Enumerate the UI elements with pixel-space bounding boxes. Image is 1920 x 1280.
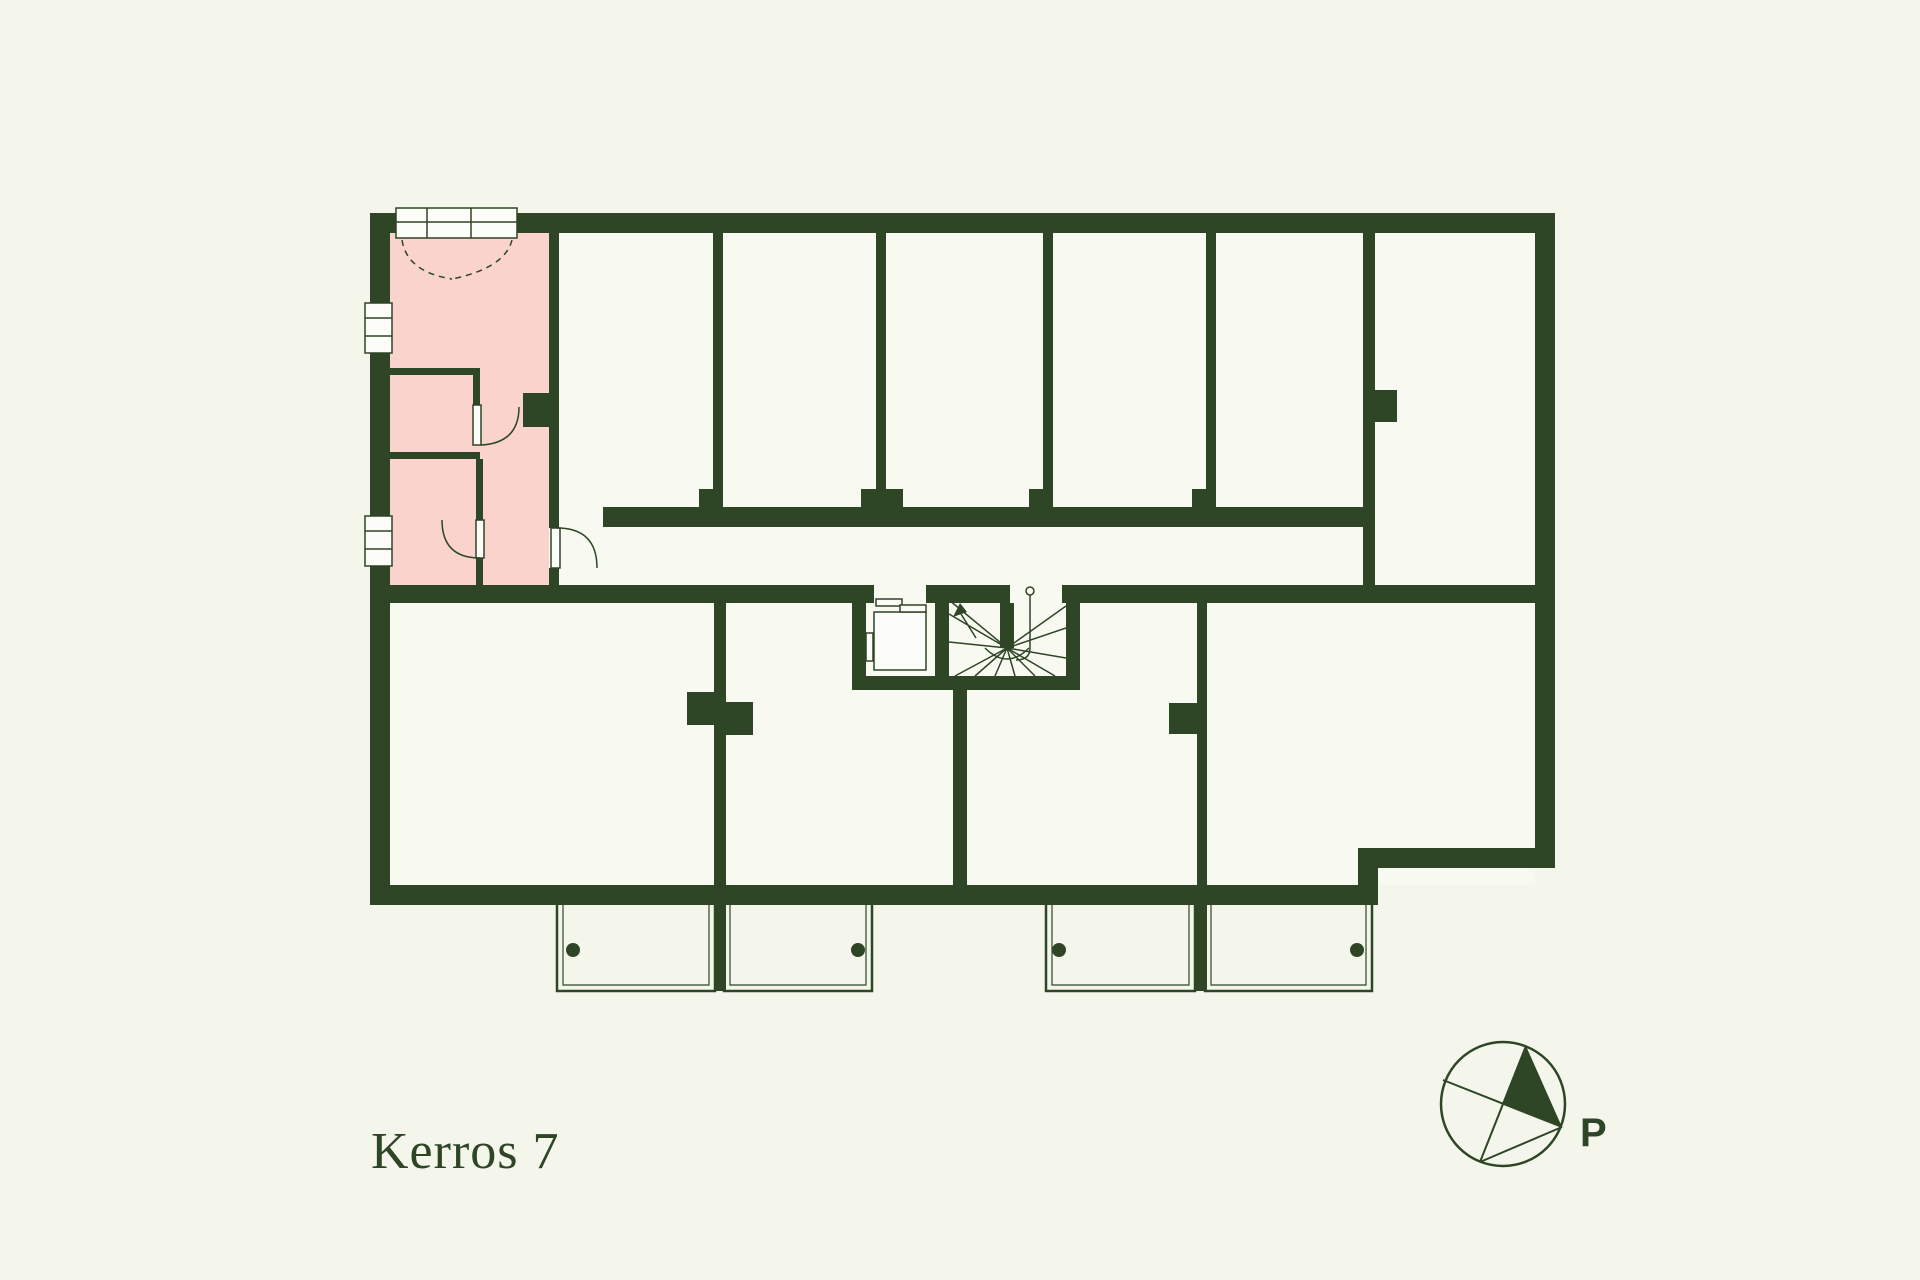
wall-segment <box>370 585 874 603</box>
wall-segment <box>852 585 866 690</box>
balcony-drain-dot <box>851 943 865 957</box>
wall-segment <box>1206 233 1216 507</box>
wall-segment <box>603 507 1363 527</box>
wall-segment <box>1378 848 1555 868</box>
floor-plan-canvas: P Kerros 7 <box>0 0 1920 1280</box>
wall-segment <box>953 690 967 885</box>
wall-segment <box>390 452 480 459</box>
wall-segment <box>476 459 483 520</box>
balcony <box>724 905 872 991</box>
wall-segment <box>549 233 559 528</box>
wall-segment <box>476 558 483 585</box>
wall-segment <box>390 368 480 375</box>
north-label: P <box>1580 1111 1607 1155</box>
wall-segment <box>714 603 726 885</box>
compass: P <box>1441 1042 1607 1166</box>
page: P Kerros 7 <box>0 0 1920 1280</box>
elevator-counterweight <box>866 633 873 661</box>
balcony-divider-wall <box>714 905 726 991</box>
wall-segment <box>1066 585 1080 690</box>
wall-segment <box>1043 233 1053 507</box>
wall-segment <box>1358 848 1378 905</box>
wall-segment <box>1535 213 1555 868</box>
balconies <box>557 905 1372 991</box>
elevator-cab <box>874 612 926 670</box>
wall-stub <box>1375 390 1397 422</box>
duct-block <box>523 393 549 427</box>
balcony-drain-dot <box>1350 943 1364 957</box>
balcony <box>1046 905 1195 991</box>
wall-segment <box>852 676 1080 690</box>
wall-segment <box>473 375 480 405</box>
window-left-2 <box>365 516 392 566</box>
balcony <box>1205 905 1372 991</box>
wall-segment <box>876 233 886 507</box>
balcony-divider-wall <box>1195 905 1207 991</box>
balcony-drain-dot <box>566 943 580 957</box>
elevator-door-panel <box>876 599 902 606</box>
wall-segment <box>1062 585 1535 603</box>
wall-segment <box>370 885 1378 905</box>
floor-title: Kerros 7 <box>371 1123 560 1180</box>
wall-segment <box>935 585 949 690</box>
elevator-door-panel <box>900 605 926 612</box>
stair-newel-wall <box>1000 603 1014 648</box>
window-left-1 <box>365 303 392 353</box>
balcony-drain-dot <box>1052 943 1066 957</box>
wall-stub <box>687 692 714 725</box>
wall-stub <box>1169 703 1197 734</box>
balcony <box>557 905 715 991</box>
wall-segment <box>1363 233 1375 603</box>
wall-stub <box>726 702 753 735</box>
wall-segment <box>549 568 559 585</box>
wall-segment <box>713 233 723 507</box>
wall-segment <box>370 213 1555 233</box>
wall-segment <box>1197 603 1207 885</box>
